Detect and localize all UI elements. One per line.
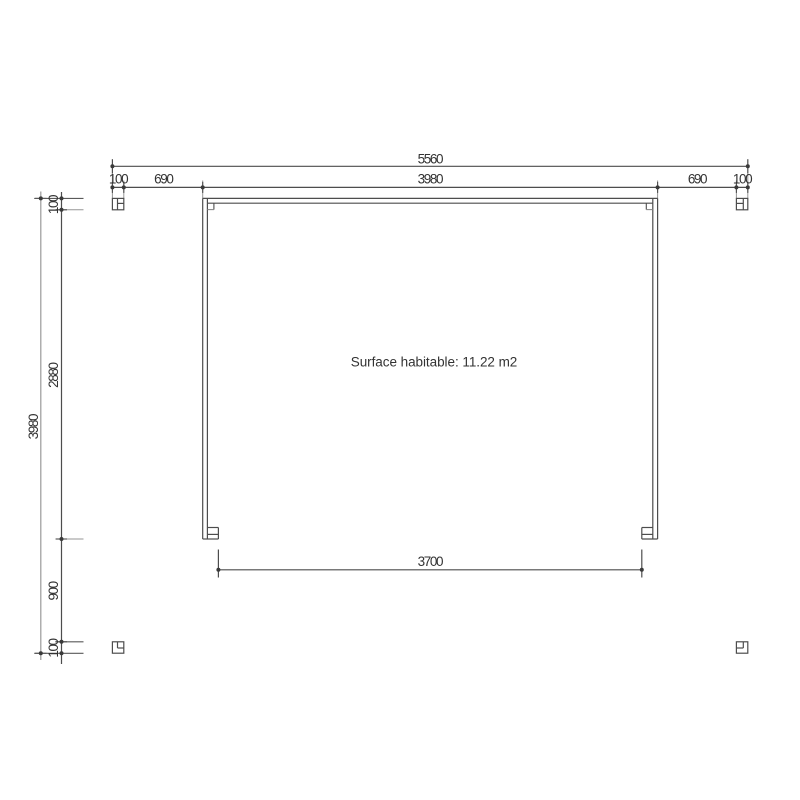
svg-text:3980: 3980 [418, 171, 443, 186]
svg-text:100: 100 [46, 195, 61, 214]
svg-text:5560: 5560 [418, 152, 443, 167]
svg-text:Surface habitable: 11.22 m2: Surface habitable: 11.22 m2 [351, 354, 518, 369]
svg-text:2880: 2880 [46, 362, 61, 387]
svg-text:100: 100 [733, 172, 752, 187]
svg-text:3700: 3700 [418, 554, 443, 569]
svg-text:690: 690 [688, 172, 707, 187]
svg-text:100: 100 [109, 172, 128, 187]
svg-text:900: 900 [46, 581, 61, 600]
svg-text:100: 100 [46, 638, 61, 657]
svg-text:690: 690 [154, 172, 173, 187]
svg-text:3980: 3980 [26, 414, 41, 439]
